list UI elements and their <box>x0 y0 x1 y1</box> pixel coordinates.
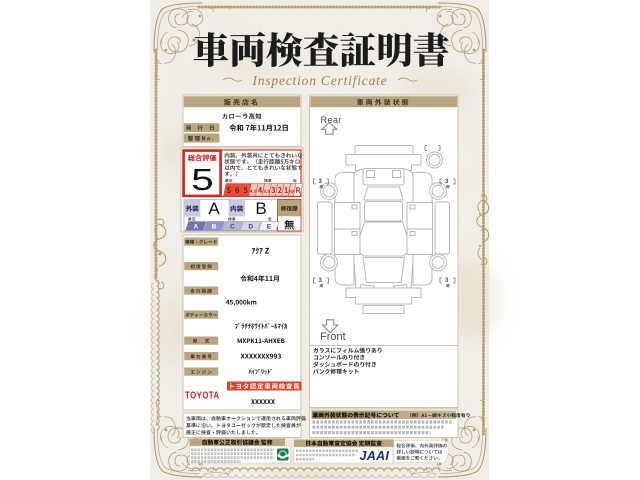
svg-text:JAAI: JAAI <box>360 449 390 463</box>
svg-text:A: A <box>193 224 198 231</box>
svg-text:Front: Front <box>320 331 346 343</box>
svg-text:Inspection Certificate: Inspection Certificate <box>252 73 388 88</box>
svg-text:C: C <box>230 224 235 231</box>
svg-text:B: B <box>212 224 217 231</box>
svg-text:E: E <box>267 224 272 231</box>
svg-text:5: 5 <box>191 162 213 197</box>
svg-text:A: A <box>208 199 220 218</box>
svg-text:D: D <box>248 224 253 231</box>
svg-text:Rear: Rear <box>321 115 342 125</box>
svg-text:TOYOTA: TOYOTA <box>185 390 220 401</box>
svg-text:B: B <box>255 199 266 218</box>
